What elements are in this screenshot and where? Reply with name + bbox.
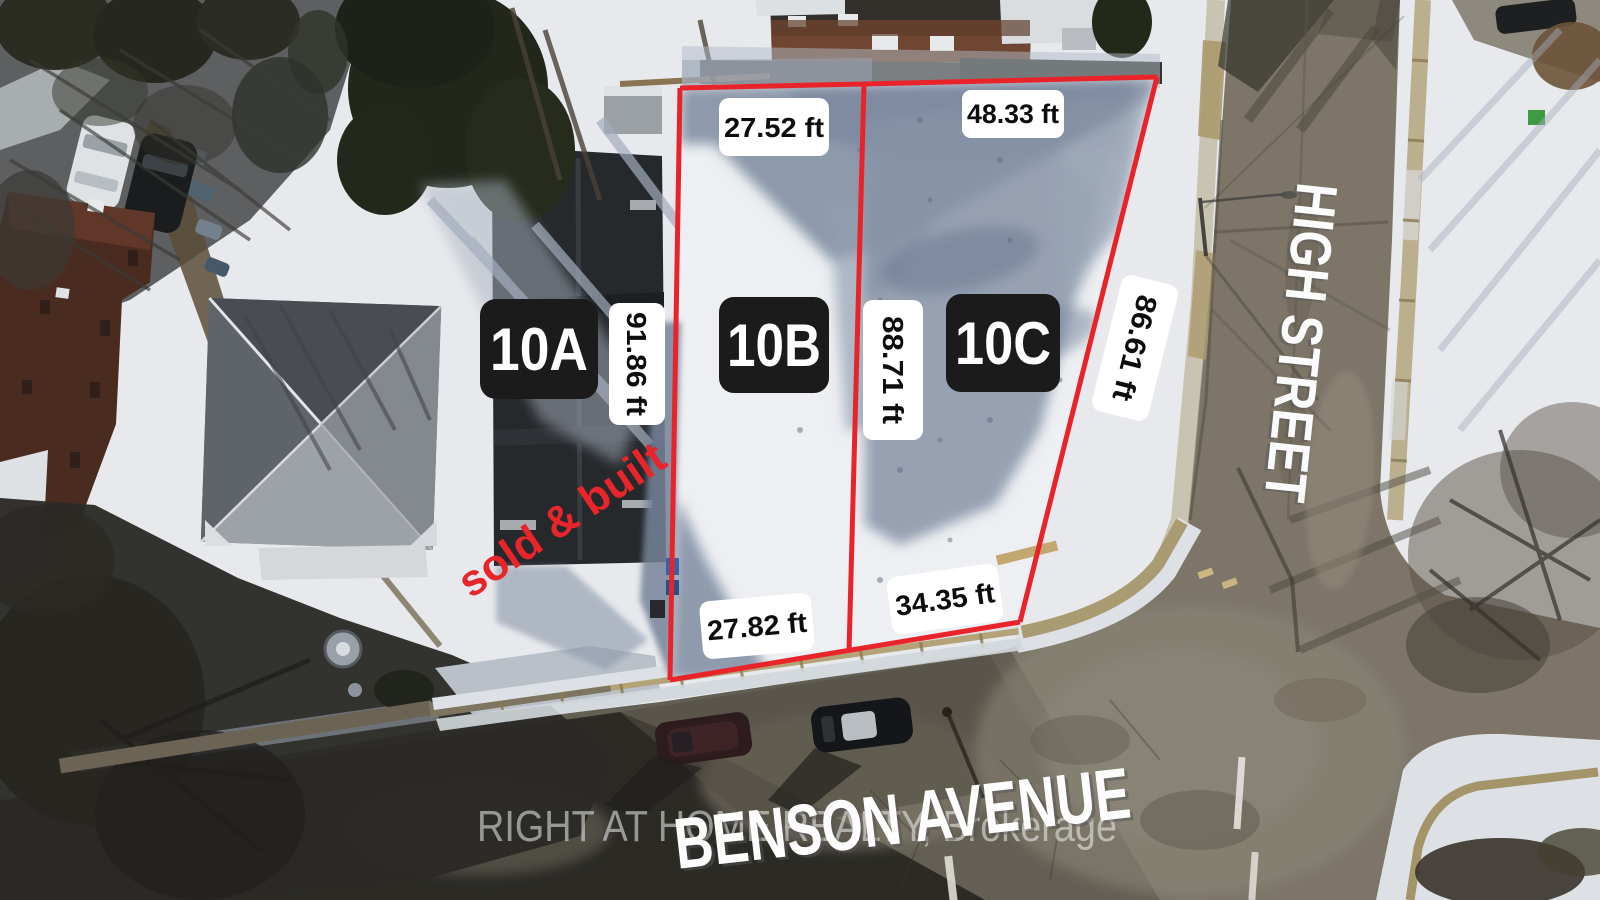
svg-text:48.33 ft: 48.33 ft [967,99,1059,129]
svg-text:10C: 10C [955,310,1051,377]
svg-text:88.71 ft: 88.71 ft [876,316,908,424]
svg-text:91.86 ft: 91.86 ft [621,312,652,416]
svg-text:10A: 10A [490,316,588,383]
svg-text:27.52 ft: 27.52 ft [724,112,824,143]
svg-text:10B: 10B [727,312,821,379]
